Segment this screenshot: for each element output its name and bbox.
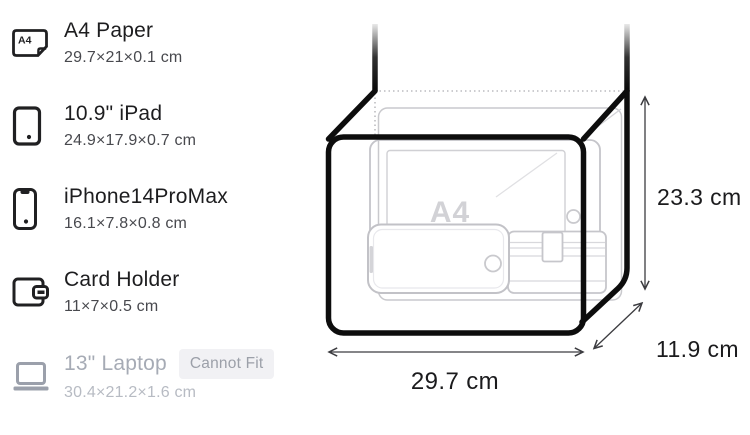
item-title: iPhone14ProMax xyxy=(64,183,228,210)
item-title: 10.9" iPad xyxy=(64,100,196,127)
width-dimension: 29.7 cm xyxy=(329,352,583,395)
cannot-fit-badge: Cannot Fit xyxy=(179,349,275,379)
depth-dimension: 11.9 cm xyxy=(594,303,739,362)
laptop-icon xyxy=(10,359,54,393)
fits-item-list: A4 A4 Paper 29.7×21×0.1 cm 10.9" iPad 24… xyxy=(10,17,310,435)
item-title: A4 Paper xyxy=(64,17,182,44)
bag-strap-edges xyxy=(375,24,627,91)
width-dimension-label: 29.7 cm xyxy=(411,368,499,395)
bag-outline xyxy=(329,91,628,333)
bag-dimension-diagram: A4 23.3 cm 29.7 cm 11.9 xyxy=(300,0,750,426)
card-holder-sketch xyxy=(508,232,606,294)
card-holder-icon xyxy=(10,274,54,310)
height-dimension-label: 23.3 cm xyxy=(657,184,742,210)
list-item-iphone: iPhone14ProMax 16.1×7.8×0.8 cm xyxy=(10,183,310,234)
list-item-a4-paper: A4 A4 Paper 29.7×21×0.1 cm xyxy=(10,17,310,68)
item-title: 13" Laptop Cannot Fit xyxy=(64,349,274,379)
ipad-icon xyxy=(10,105,54,147)
svg-text:A4: A4 xyxy=(18,34,32,46)
item-dimensions: 30.4×21.2×1.6 cm xyxy=(64,382,274,403)
item-dimensions: 29.7×21×0.1 cm xyxy=(64,47,182,68)
item-dimensions: 16.1×7.8×0.8 cm xyxy=(64,213,228,234)
depth-dimension-label: 11.9 cm xyxy=(656,336,739,362)
list-item-laptop: 13" Laptop Cannot Fit 30.4×21.2×1.6 cm xyxy=(10,349,310,403)
item-dimensions: 11×7×0.5 cm xyxy=(64,296,179,317)
list-item-ipad: 10.9" iPad 24.9×17.9×0.7 cm xyxy=(10,100,310,151)
iphone-icon xyxy=(10,186,54,232)
list-item-card-holder: Card Holder 11×7×0.5 cm xyxy=(10,266,310,317)
item-title: Card Holder xyxy=(64,266,179,293)
item-dimensions: 24.9×17.9×0.7 cm xyxy=(64,130,196,151)
iphone-sketch xyxy=(368,225,509,294)
a4-paper-icon: A4 xyxy=(10,26,54,60)
height-dimension: 23.3 cm xyxy=(645,97,742,289)
